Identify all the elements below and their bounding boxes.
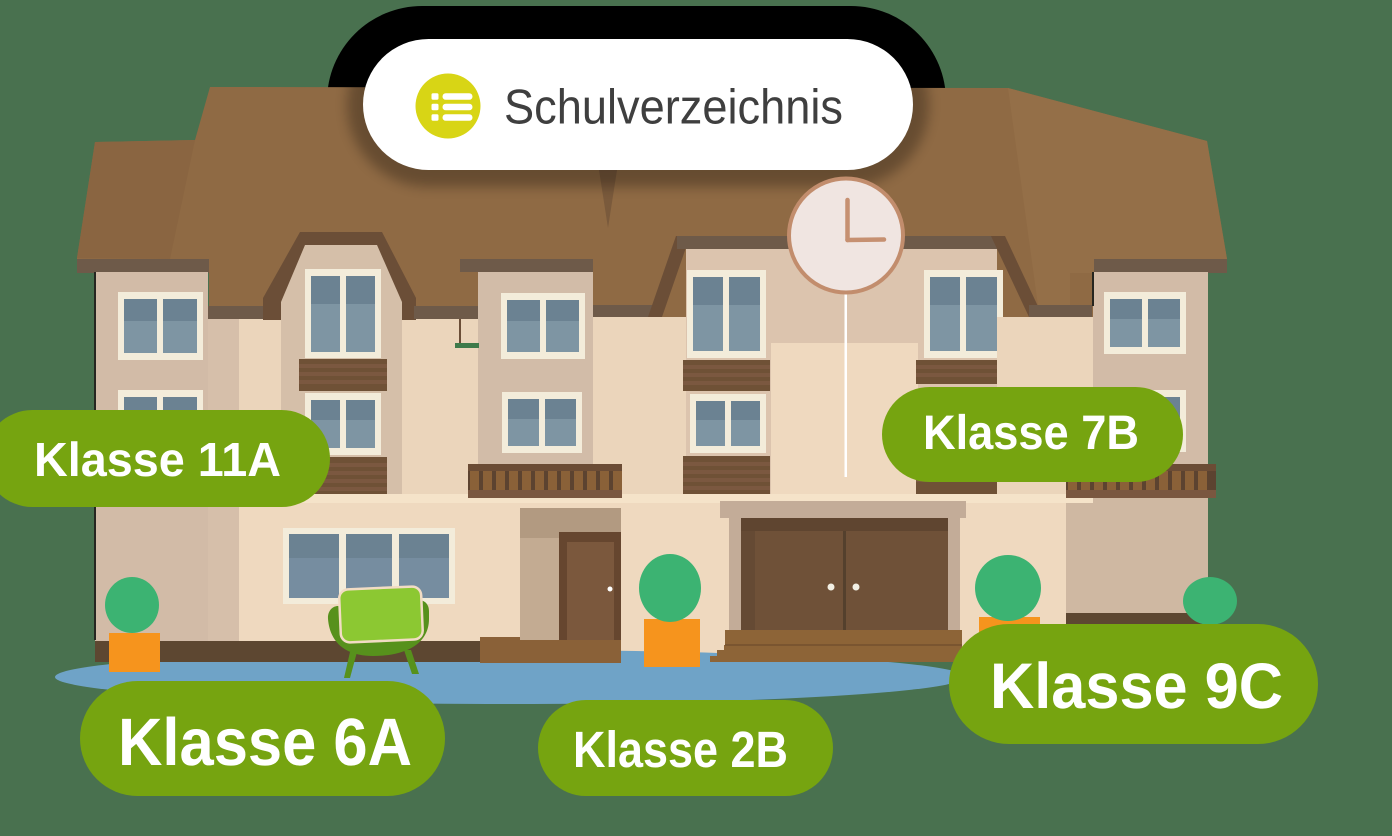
svg-text:Klasse 2B: Klasse 2B	[573, 721, 788, 778]
svg-text:Schulverzeichnis: Schulverzeichnis	[504, 81, 843, 135]
svg-text:Klasse 7B: Klasse 7B	[923, 406, 1139, 460]
svg-text:Klasse 6A: Klasse 6A	[118, 705, 412, 780]
svg-text:Klasse 9C: Klasse 9C	[990, 650, 1283, 722]
svg-text:Klasse 11A: Klasse 11A	[34, 434, 281, 487]
